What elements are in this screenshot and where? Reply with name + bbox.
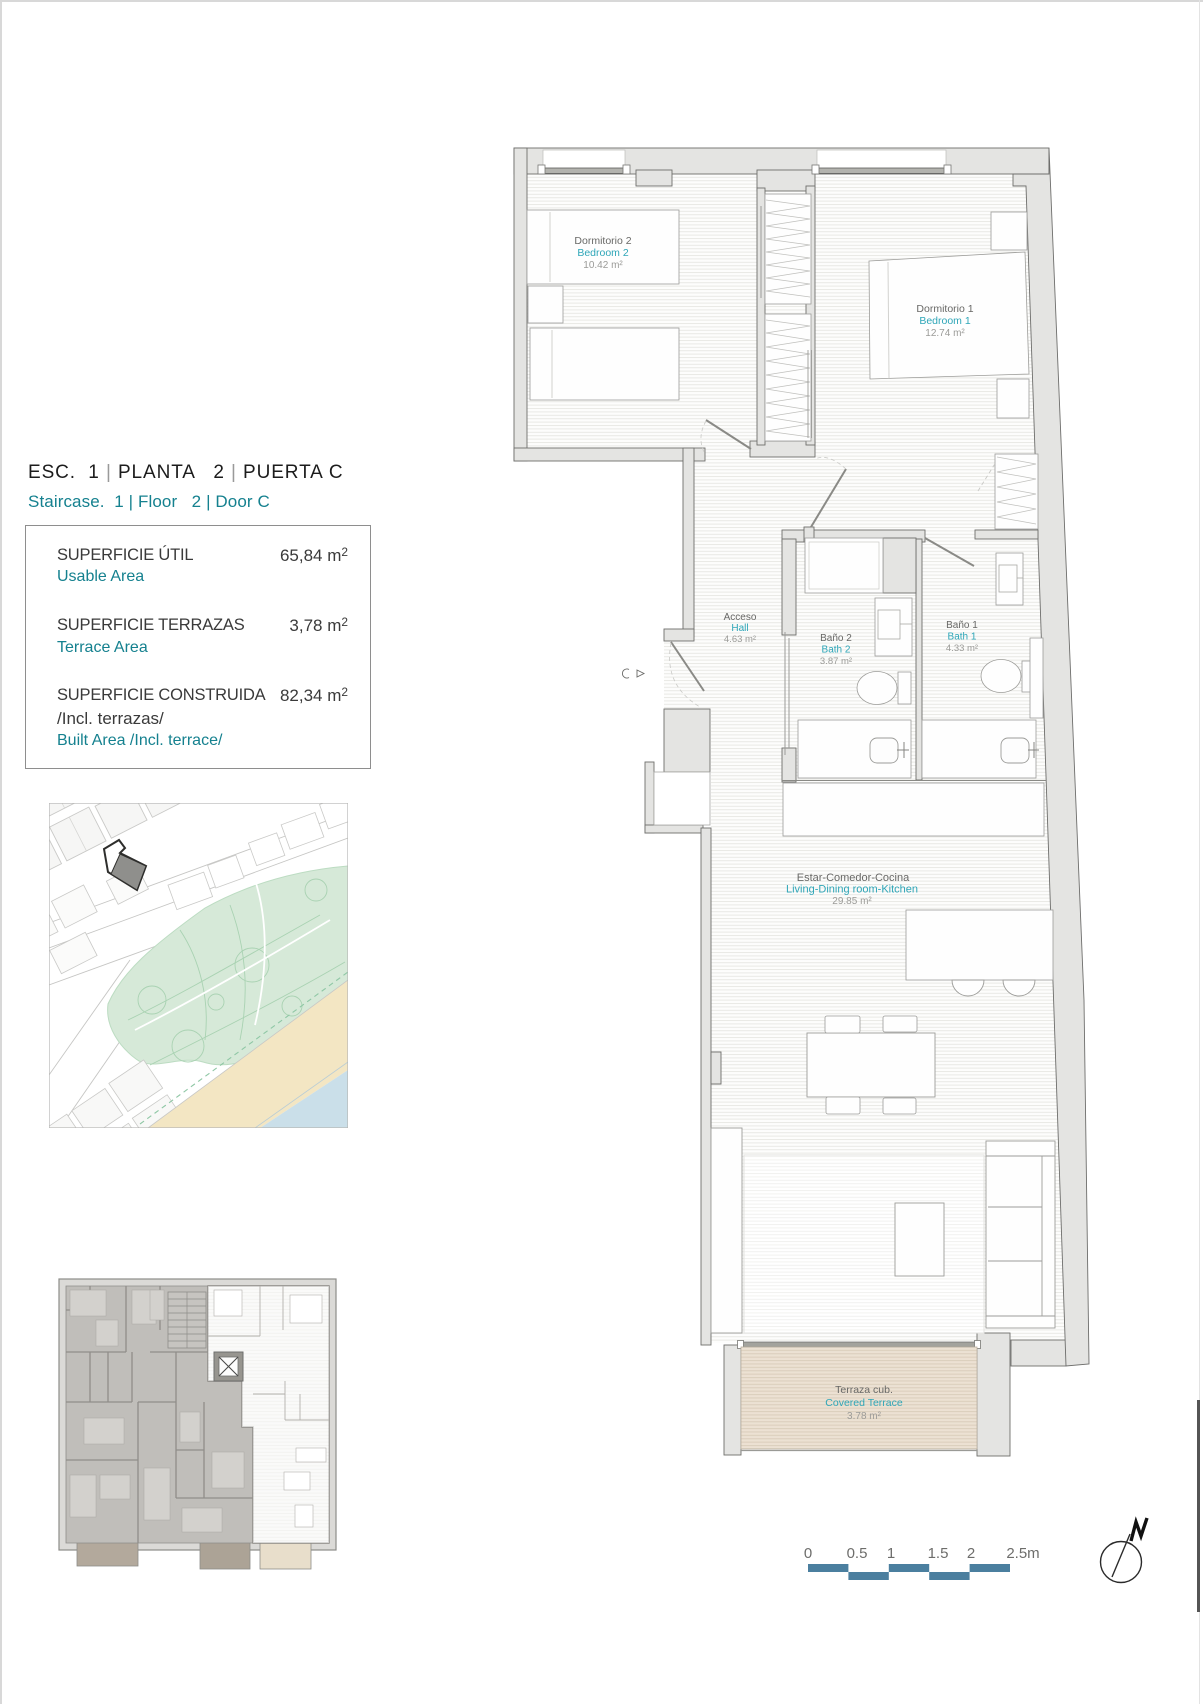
svg-text:Acceso: Acceso [724,612,757,623]
svg-text:1: 1 [887,1545,895,1562]
svg-text:Dormitorio 2: Dormitorio 2 [574,235,631,247]
svg-text:3.78 m²: 3.78 m² [847,1411,882,1422]
svg-text:4.63 m²: 4.63 m² [724,634,756,645]
svg-text:2: 2 [967,1545,975,1562]
svg-text:Living-Dining room-Kitchen: Living-Dining room-Kitchen [786,884,918,896]
svg-text:3.87 m²: 3.87 m² [820,656,852,667]
svg-text:12.74 m²: 12.74 m² [925,328,965,339]
svg-text:Baño 2: Baño 2 [820,633,852,644]
svg-text:Bedroom 2: Bedroom 2 [577,247,629,259]
svg-text:1.5: 1.5 [928,1545,949,1562]
svg-text:Covered Terrace: Covered Terrace [825,1397,903,1409]
svg-text:29.85 m²: 29.85 m² [832,896,872,907]
svg-text:10.42 m²: 10.42 m² [583,260,623,271]
svg-text:Hall: Hall [731,623,748,634]
svg-text:Bath 1: Bath 1 [948,632,977,643]
svg-text:Dormitorio 1: Dormitorio 1 [916,303,973,315]
svg-text:4.33 m²: 4.33 m² [946,643,978,654]
svg-text:Baño 1: Baño 1 [946,620,978,631]
svg-text:Bath 2: Bath 2 [822,645,851,656]
svg-text:0: 0 [804,1545,812,1562]
svg-text:Bedroom 1: Bedroom 1 [919,315,971,327]
svg-text:2.5m: 2.5m [1006,1545,1039,1562]
svg-text:Estar-Comedor-Cocina: Estar-Comedor-Cocina [797,872,910,884]
svg-text:Terraza cub.: Terraza cub. [835,1384,893,1396]
svg-text:0.5: 0.5 [847,1545,868,1562]
